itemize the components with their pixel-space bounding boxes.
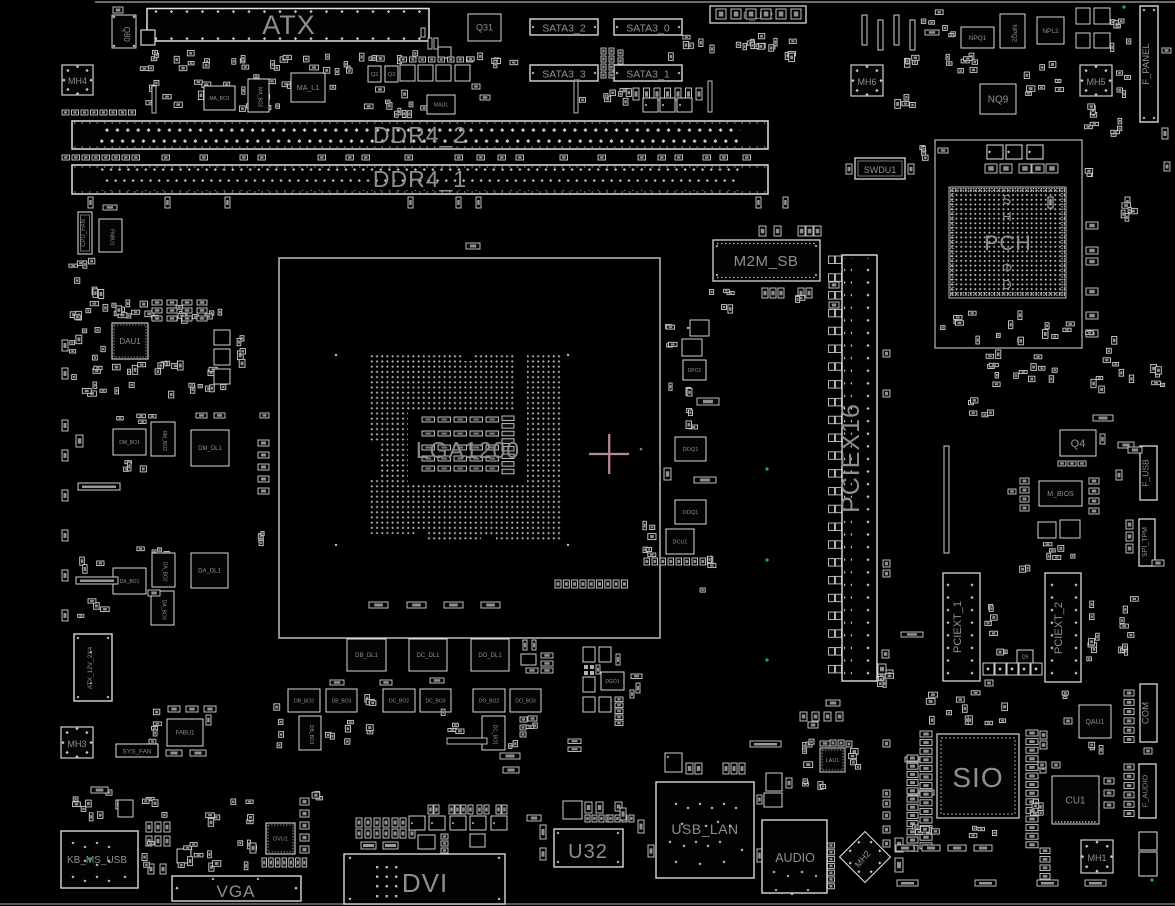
svg-text:MAU1: MAU1 bbox=[434, 102, 448, 108]
svg-text:Q9: Q9 bbox=[1022, 654, 1029, 660]
svg-text:SWDU1: SWDU1 bbox=[864, 165, 897, 175]
svg-text:SYS_FAN: SYS_FAN bbox=[122, 749, 152, 756]
svg-text:ATX: ATX bbox=[262, 10, 316, 40]
svg-text:DC_BO3: DC_BO3 bbox=[425, 698, 445, 704]
svg-text:MH3: MH3 bbox=[67, 739, 86, 749]
svg-text:AUDIO: AUDIO bbox=[775, 851, 815, 865]
svg-text:Φ: Φ bbox=[1002, 260, 1012, 275]
svg-text:DVI: DVI bbox=[402, 868, 448, 898]
svg-text:PCIEX16: PCIEX16 bbox=[837, 403, 865, 513]
svg-text:DM_BO1: DM_BO1 bbox=[119, 440, 140, 446]
svg-text:VGA: VGA bbox=[217, 882, 256, 901]
svg-text:S: S bbox=[1003, 192, 1012, 207]
svg-text:Q80: Q80 bbox=[122, 27, 131, 43]
svg-text:SIO: SIO bbox=[952, 762, 1003, 793]
svg-text:MH4: MH4 bbox=[68, 76, 87, 86]
svg-text:DB_DL1: DB_DL1 bbox=[355, 653, 378, 659]
svg-text:FNBU1: FNBU1 bbox=[109, 229, 115, 246]
svg-text:FABU1: FABU1 bbox=[175, 731, 195, 737]
svg-text:D: D bbox=[1002, 277, 1011, 292]
svg-text:F_USB: F_USB bbox=[1141, 459, 1151, 487]
svg-text:DC_DL1: DC_DL1 bbox=[416, 653, 440, 659]
svg-text:DA_BO3: DA_BO3 bbox=[161, 600, 167, 620]
svg-text:PCH: PCH bbox=[984, 232, 1031, 255]
svg-text:DO_BO2: DO_BO2 bbox=[479, 698, 500, 704]
svg-text:MH1: MH1 bbox=[1087, 853, 1106, 863]
svg-text:SATA3_0: SATA3_0 bbox=[626, 23, 670, 35]
svg-text:DOQ1: DOQ1 bbox=[683, 510, 699, 516]
svg-text:H: H bbox=[1002, 209, 1011, 224]
svg-text:PCIEXT_2: PCIEXT_2 bbox=[1053, 602, 1065, 654]
svg-text:DO_BO3: DO_BO3 bbox=[515, 698, 536, 704]
svg-text:DC_BO2: DC_BO2 bbox=[389, 698, 409, 704]
svg-text:DA_DL1: DA_DL1 bbox=[198, 569, 221, 575]
svg-text:LGA1200: LGA1200 bbox=[416, 437, 520, 463]
svg-text:DDR4_1: DDR4_1 bbox=[373, 166, 467, 192]
svg-text:MA_BO1: MA_BO1 bbox=[209, 96, 230, 102]
svg-text:DB_BO3: DB_BO3 bbox=[332, 698, 352, 704]
svg-text:F_AUDIO: F_AUDIO bbox=[1141, 775, 1150, 808]
svg-text:DAU1: DAU1 bbox=[119, 337, 141, 346]
svg-text:DC_BO1: DC_BO1 bbox=[492, 725, 498, 745]
svg-text:CU1: CU1 bbox=[1065, 796, 1085, 807]
svg-text:NQ9: NQ9 bbox=[988, 95, 1009, 106]
svg-text:SATA3_3: SATA3_3 bbox=[542, 69, 586, 81]
svg-text:MH5: MH5 bbox=[1086, 77, 1105, 87]
svg-text:DA_BO2: DA_BO2 bbox=[162, 562, 168, 582]
svg-text:DB_BO2: DB_BO2 bbox=[294, 698, 314, 704]
svg-text:DGO1: DGO1 bbox=[605, 679, 619, 685]
svg-text:MA_L1: MA_L1 bbox=[297, 85, 319, 92]
svg-text:NPQ1: NPQ1 bbox=[969, 35, 987, 42]
svg-text:PCIEXT_1: PCIEXT_1 bbox=[952, 601, 964, 653]
svg-text:NPL2: NPL2 bbox=[1042, 28, 1059, 35]
svg-text:COM: COM bbox=[1141, 702, 1152, 724]
svg-text:Q4: Q4 bbox=[1071, 438, 1086, 450]
svg-text:CPU_FAN: CPU_FAN bbox=[81, 219, 87, 247]
svg-text:DVU1: DVU1 bbox=[273, 836, 288, 842]
svg-text:DPO1: DPO1 bbox=[688, 368, 702, 374]
svg-text:SATA3_1: SATA3_1 bbox=[626, 69, 670, 81]
svg-text:DCU1: DCU1 bbox=[673, 539, 688, 545]
svg-text:DM_BO2: DM_BO2 bbox=[161, 430, 167, 451]
svg-text:MA_BO2: MA_BO2 bbox=[257, 87, 263, 108]
svg-text:LAU1: LAU1 bbox=[826, 758, 840, 764]
svg-text:M2M_SB: M2M_SB bbox=[734, 253, 799, 270]
svg-text:F_PANEL: F_PANEL bbox=[1141, 43, 1152, 85]
svg-text:DA_BO1: DA_BO1 bbox=[120, 579, 140, 585]
svg-text:SPI_TPM: SPI_TPM bbox=[1142, 527, 1149, 557]
svg-text:U32: U32 bbox=[568, 841, 608, 863]
svg-text:Q3: Q3 bbox=[388, 72, 395, 78]
svg-text:QAU1: QAU1 bbox=[1085, 719, 1104, 726]
svg-text:NPQ2: NPQ2 bbox=[1011, 24, 1018, 42]
svg-text:DB_BO1: DB_BO1 bbox=[308, 725, 314, 745]
svg-text:M_BIOS: M_BIOS bbox=[1047, 491, 1074, 498]
svg-text:DO_DL1: DO_DL1 bbox=[478, 653, 502, 659]
svg-text:Q2: Q2 bbox=[371, 72, 378, 78]
svg-text:DM_DL1: DM_DL1 bbox=[198, 446, 222, 452]
svg-text:Q31: Q31 bbox=[476, 23, 493, 33]
svg-text:DOQ1: DOQ1 bbox=[683, 447, 699, 453]
svg-text:MH6: MH6 bbox=[857, 77, 876, 87]
svg-text:SATA3_2: SATA3_2 bbox=[542, 23, 586, 35]
svg-text:DDR4_2: DDR4_2 bbox=[373, 122, 467, 148]
